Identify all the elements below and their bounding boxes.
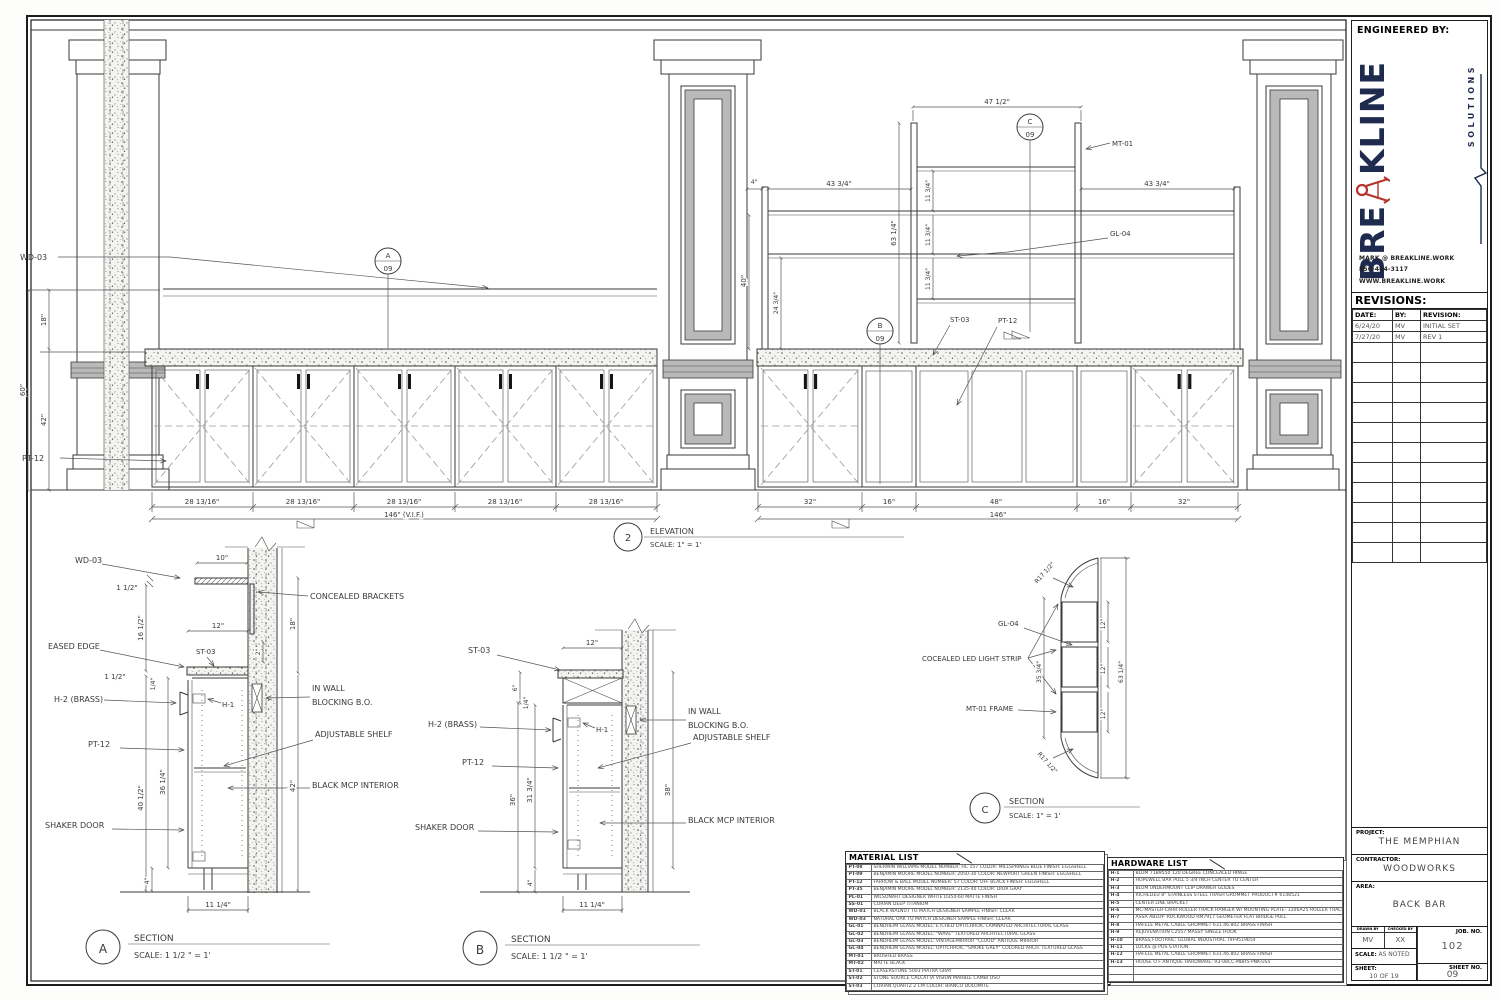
dim-label: 1/4" [523,697,530,710]
dim-label: 32" [1178,498,1190,506]
dim-label: 28 13/16" [387,498,422,506]
table-row: ST-03CORIAN QUARTZ 2 CM COLOR: BIANCO DO… [847,983,1104,990]
part-label: H-1 [222,701,234,709]
table-cell: MATTE BLACK [872,961,1104,968]
hardware-list: HARDWARE LIST H-1BLUM 71B9550 120 DEGREE… [1107,857,1344,983]
callout-sheet: 09 [384,265,393,273]
table-row: PT-12FARROW & BALL MODEL NUMBER: 57 COLO… [847,879,1104,886]
dim-label: 28 13/16" [488,498,523,506]
table-cell: H-4 [1109,893,1134,900]
table-row [1353,343,1487,363]
table-cell: PT-35 [847,887,872,894]
brand-right: KLINE [1356,61,1389,175]
part-label: ST-03 [468,646,490,655]
table-cell [1393,523,1421,543]
part-label: H-1 [596,726,608,734]
table-row: MT-01BRUSHED BRASS [847,953,1104,960]
dim-label: 12" [1100,709,1107,720]
breakline-logo: BREKLINE SOLUTIONS [1354,58,1484,284]
table-row [1353,383,1487,403]
area-row: AREA: BACK BAR [1352,882,1487,927]
countertop-right [757,349,1243,366]
table-row: H-9REJUVENATION C2557 MASSY SINGLE HOOK [1109,930,1343,937]
dim-label: 1 1/2" [104,673,125,681]
table-cell [1393,423,1421,443]
table-row: PL-01WILSONART DESIGNER WHITE D354-60 MA… [847,894,1104,901]
dim-label: 38" [664,784,672,796]
job-no-label: JOB. NO. [1456,929,1482,935]
table-cell: MC-MASTER-CARR ROLLER TRACK HANGER W/ MO… [1134,908,1343,915]
table-cell: REV 1 [1421,332,1487,343]
view-scale: SCALE: 1" = 1' [1009,812,1060,820]
table-cell: GL-03 [847,939,872,946]
table-cell [1353,483,1393,503]
dim-label: 18" [40,314,48,326]
part-label: ADJUSTABLE SHELF [693,733,771,742]
table-cell [1393,483,1421,503]
engineered-by-box: ENGINEERED BY: BREKLINE SOLUTIONS MARK @… [1352,21,1487,293]
table-row [1353,523,1487,543]
table-cell: BRASS FOOTRAIL: GLOBAL INDUSTRIAL T9F951… [1134,937,1343,944]
view-scale: SCALE: 1 1/2 " = 1' [134,951,211,960]
part-label: PT-12 [22,454,44,463]
table-row: PT-09BENJAMIN MOORE MODEL NUMBER: 2050-3… [847,872,1104,879]
callout-sheet: 09 [876,335,885,343]
dim-label: 31 3/4" [526,777,534,803]
job-no-cell: JOB. NO. 102 [1418,927,1487,964]
title-block-grid: DRAWN BY MV CHECKED BY XX SCALE: AS NOTE… [1352,927,1487,980]
table-cell: HAFELE METAL CABLE GROMMET 631.46.802 BR… [1134,952,1343,959]
area-label: AREA: [1356,884,1375,890]
scale-cell: SCALE: AS NOTED [1352,949,1416,965]
dim-label: 16 1/2" [137,615,145,641]
table-cell: RICHELIEU 8" STAINLESS STEEL TRASH GROMM… [1134,893,1343,900]
part-label: SHAKER DOOR [415,823,475,832]
title-block: ENGINEERED BY: BREKLINE SOLUTIONS MARK @… [1351,20,1488,981]
table-cell: H-5 [1109,900,1134,907]
table-cell: HOPEWELL BAR PULL 5 3/4 INCH CENTER TO C… [1134,878,1343,885]
table-row: PT-08SHERWIN WILLIAMS MODEL NUMBER: HC 1… [847,865,1104,872]
table-cell [1421,383,1487,403]
rev-col-date: DATE: [1353,310,1393,321]
dim-label: 12" [212,622,224,630]
table-cell: HAFELE METAL CABLE GROMMET 631.46.802 BR… [1134,922,1343,929]
table-row: GL-01BENDHEIM GLASS MODEL: ETCHED OPTICH… [847,924,1104,931]
table-cell [1109,974,1134,981]
checked-by-cell: CHECKED BY XX [1385,927,1417,948]
contact-phone: 856-404-3117 [1359,264,1454,275]
part-label: GL-04 [998,620,1019,628]
part-label: BLOCKING B.O. [688,721,748,730]
table-cell [1353,523,1393,543]
table-cell: CENTER LINE BRACKET [1134,900,1343,907]
stamp-box [1352,563,1487,828]
drawn-by-value: MV [1352,933,1384,948]
dim-label: 11 3/4" [925,180,932,202]
oak-shelf [195,578,248,584]
table-cell: NATURAL OAK TO MATCH DESIGNER SAMPLE FIN… [872,916,1104,923]
drawing-canvas: A 09 B 09 C 09 WD-03 PT-12 MT-01 GL-04 S… [0,0,1500,1000]
table-cell: H-12 [1109,952,1134,959]
breakline-zigzag-icon [1474,58,1488,284]
table-cell: PT-08 [847,865,872,872]
table-cell: 7/27/20 [1353,332,1393,343]
table-cell [1393,503,1421,523]
hardware-list-title: HARDWARE LIST [1108,858,1213,870]
table-cell: BRUSHED BRASS [872,953,1104,960]
part-label: BLACK MCP INTERIOR [312,781,399,790]
table-row [1109,967,1343,974]
drawing-sheet: A 09 B 09 C 09 WD-03 PT-12 MT-01 GL-04 S… [0,0,1500,1000]
table-cell [1393,383,1421,403]
dim-label: 11 3/4" [925,268,932,290]
table-cell: BLACK WALNUT TO MATCH DESIGNER SAMPLE FI… [872,909,1104,916]
dim-label: 16" [1098,498,1110,506]
table-row [1353,543,1487,563]
sheet-label: SHEET: [1355,966,1377,972]
contact-web: WWW.BREAKLINE.WORK [1359,276,1454,287]
table-row [1353,363,1487,383]
table-row: PT-35BENJAMIN MOORE MODEL NUMBER: 2135-4… [847,887,1104,894]
table-cell: BLUM UNDERMOUNT CLIP DRAWER GLIDES [1134,885,1343,892]
table-cell: GL-04 [847,946,872,953]
dim-label: 11 3/4" [925,224,932,246]
table-cell: H-7 [1109,915,1134,922]
table-cell [1421,443,1487,463]
brand-wordmark: BREKLINE [1354,58,1390,284]
table-row: MT-02MATTE BLACK [847,961,1104,968]
contact-block: MARK @ BREAKLINE.WORK 856-404-3117 WWW.B… [1359,253,1454,287]
dim-label: 12" [586,639,598,647]
table-cell: 6/24/20 [1353,321,1393,332]
dim-label: 10" [216,554,228,562]
part-label: MT-01 [1112,140,1133,148]
contractor-label: CONTRACTOR: [1356,857,1400,863]
dim-label: 63 1/4" [1118,661,1125,683]
part-label: MT-01 FRAME [966,705,1013,713]
table-cell: BLUM 71B9550 120 DEGREE CONCEALED HINGE [1134,871,1343,878]
part-label: IN WALL [688,707,721,716]
part-label: PT-12 [998,317,1017,325]
contractor-row: CONTRACTOR: WOODWORKS [1352,855,1487,882]
table-cell: BENJAMIN MOORE MODEL NUMBER: 2135-40 COL… [872,887,1104,894]
table-cell [1421,363,1487,383]
table-row: H-3BLUM UNDERMOUNT CLIP DRAWER GLIDES [1109,885,1343,892]
table-cell: CORIAN QUARTZ 2 CM COLOR: BIANCO DOLOMIT… [872,983,1104,990]
table-cell: CORIAN DEEP TITANIUM [872,902,1104,909]
table-row: H-13HOUSE O F ANTIQUE HARDWARE: R3-08CC-… [1109,959,1343,966]
table-row: H-7ASSA ABLOY- ROCKWOOD RM7917 GEOMETEK … [1109,915,1343,922]
callout-sheet: 09 [1026,131,1035,139]
table-cell [1353,363,1393,383]
table-row: ST-01CEASERSTONE 5003 PIATRA GRAY [847,968,1104,975]
table-cell [1393,463,1421,483]
table-cell [1421,343,1487,363]
table-cell: WILSONART DESIGNER WHITE D354-60 MATTE F… [872,894,1104,901]
table-cell: REJUVENATION C2557 MASSY SINGLE HOOK [1134,930,1343,937]
table-row: H-10BRASS FOOTRAIL: GLOBAL INDUSTRIAL T9… [1109,937,1343,944]
part-label: PT-12 [462,758,484,767]
engineered-by-label: ENGINEERED BY: [1352,21,1487,40]
table-cell: SHERWIN WILLIAMS MODEL NUMBER: HC 157 CO… [872,865,1104,872]
dim-label: 43 3/4" [826,180,852,188]
part-label: SHAKER DOOR [45,821,105,830]
table-cell [1353,343,1393,363]
scale-value: AS NOTED [1378,951,1409,958]
dim-label: 1 1/2" [116,584,137,592]
section-letter: A [99,942,108,956]
dim-label: 32" [804,498,816,506]
table-cell: BENDHEIM GLASS MODEL: "WAVE" TEXTURED AR… [872,931,1104,938]
table-cell [1421,403,1487,423]
table-cell [1109,967,1134,974]
part-label: CONCEALED BRACKETS [310,592,404,601]
dim-label: 36" [509,794,517,806]
table-row: GL-04BENDHEIM GLASS MODEL: OPTICHROIC "S… [847,946,1104,953]
table-cell: ASSA ABLOY- ROCKWOOD RM7917 GEOMETEK FLA… [1134,915,1343,922]
table-row: 7/27/20MVREV 1 [1353,332,1487,343]
table-cell: PT-12 [847,879,872,886]
brand-sub: SOLUTIONS [1467,64,1476,147]
table-cell: ST-03 [847,983,872,990]
part-label: COCEALED LED LIGHT STRIP [922,655,1021,663]
view-title: SECTION [1009,797,1044,806]
table-row [1353,443,1487,463]
table-cell: ST-01 [847,968,872,975]
table-cell [1353,463,1393,483]
table-cell [1393,343,1421,363]
dim-label: 1/4" [150,678,157,691]
dim-label: 18" [289,618,297,630]
callout-label: B [878,322,883,330]
table-cell: STONE SOURCE CALCATTA VISION MARBLE CAMB… [872,976,1104,983]
part-label: H-2 (BRASS) [54,695,103,704]
dim-label: 60" [19,384,27,396]
dim-label: 4" [751,179,758,186]
callout-label: A [386,252,391,260]
dim-label: 24 3/4" [773,292,780,314]
scale-label: SCALE: [1355,952,1377,958]
table-row: H-5CENTER LINE BRACKET [1109,900,1343,907]
table-cell [1393,543,1421,563]
table-cell [1421,483,1487,503]
table-row [1353,463,1487,483]
table-row: H-6MC-MASTER-CARR ROLLER TRACK HANGER W/… [1109,908,1343,915]
table-row: H-2HOPEWELL BAR PULL 5 3/4 INCH CENTER T… [1109,878,1343,885]
dim-label: 28 13/16" [286,498,321,506]
part-label: WD-03 [20,253,47,262]
sheet-no-label: SHEET NO. [1449,965,1482,971]
table-cell: HOUSE O F ANTIQUE HARDWARE: R3-08CC-MBR5… [1134,959,1343,966]
counter-section [187,667,248,675]
table-cell: H-13 [1109,959,1134,966]
dim-label: 16" [883,498,895,506]
sheet-cell: SHEET: 10 OF 19 [1352,965,1416,980]
table-cell [1353,503,1393,523]
table-cell [1393,403,1421,423]
table-cell: MV [1393,321,1421,332]
table-row [1353,403,1487,423]
table-cell [1421,423,1487,443]
view-number: 2 [625,533,631,544]
dim-label: 63 1/4" [890,220,898,246]
revisions-table: DATE: BY: REVISION: 6/24/20MVINITIAL SET… [1352,309,1487,563]
rev-col-revision: REVISION: [1421,310,1487,321]
table-cell: BENJAMIN MOORE MODEL NUMBER: 2050-30 COL… [872,872,1104,879]
table-cell: INITIAL SET [1421,321,1487,332]
part-label: BLACK MCP INTERIOR [688,816,775,825]
table-cell [1134,967,1343,974]
checked-by-value: XX [1385,933,1417,948]
table-cell: WD-01 [847,909,872,916]
dim-label: 47 1/2" [984,98,1010,106]
table-cell: FARROW & BALL MODEL NUMBER: 57 COLOR: OF… [872,879,1104,886]
dim-label: 36 1/4" [159,769,167,795]
dim-label: 42" [289,780,297,792]
table-cell: H-3 [1109,885,1134,892]
table-cell [1353,543,1393,563]
table-cell: GL-01 [847,924,872,931]
table-row: H-12HAFELE METAL CABLE GROMMET 631.46.80… [1109,952,1343,959]
dim-label: 2" [255,648,262,655]
section-letter: B [476,943,484,957]
table-cell [1353,443,1393,463]
view-scale: SCALE: 1 1/2 " = 1' [511,952,588,961]
table-cell [1353,383,1393,403]
dim-label: 6" [512,684,519,691]
table-cell: LOCKS @ POS STATION [1134,945,1343,952]
rev-col-by: BY: [1393,310,1421,321]
dim-label: 43 3/4" [1144,180,1170,188]
part-label: GL-04 [1110,230,1131,238]
project-row: PROJECT: THE MEMPHIAN [1352,828,1487,855]
table-cell [1134,974,1343,981]
dim-label: 11 1/4" [579,901,605,909]
part-label: H-2 (BRASS) [428,720,477,729]
countertop-left [145,349,657,366]
view-title: ELEVATION [650,527,694,536]
table-row: SS-01CORIAN DEEP TITANIUM [847,902,1104,909]
callout-label: C [1028,118,1033,126]
compass-icon [1354,175,1390,205]
table-cell: H-6 [1109,908,1134,915]
table-cell: CEASERSTONE 5003 PIATRA GRAY [872,968,1104,975]
dim-label: 4" [144,877,151,884]
view-title: SECTION [511,935,551,945]
table-cell: H-1 [1109,871,1134,878]
part-label: ST-03 [950,316,970,324]
table-cell: ST-02 [847,976,872,983]
table-cell [1393,443,1421,463]
table-cell: H-10 [1109,937,1134,944]
dim-label: 12" [1100,664,1107,675]
table-row [1353,423,1487,443]
table-row [1109,974,1343,981]
table-row: H-8HAFELE METAL CABLE GROMMET 631.46.802… [1109,922,1343,929]
table-cell: H-2 [1109,878,1134,885]
table-cell: PL-01 [847,894,872,901]
table-row [1353,503,1487,523]
table-cell: BENDHEIM GLASS MODEL: ETCHED OPTICHROIC … [872,924,1104,931]
table-cell: MT-01 [847,953,872,960]
table-row: ST-02STONE SOURCE CALCATTA VISION MARBLE… [847,976,1104,983]
table-cell [1421,463,1487,483]
dim-label: 28 13/16" [589,498,624,506]
material-list: MATERIAL LIST PT-08SHERWIN WILLIAMS MODE… [845,851,1105,992]
part-label: EASED EDGE [48,642,100,651]
part-label: IN WALL [312,684,345,693]
dim-label: 40 1/2" [137,785,145,811]
table-row: H-11LOCKS @ POS STATION [1109,945,1343,952]
table-cell: MV [1393,332,1421,343]
table-row: H-4RICHELIEU 8" STAINLESS STEEL TRASH GR… [1109,893,1343,900]
table-row: 6/24/20MVINITIAL SET [1353,321,1487,332]
dim-label: 12" [1100,619,1107,630]
table-row: H-1BLUM 71B9550 120 DEGREE CONCEALED HIN… [1109,871,1343,878]
dim-label: 28 13/16" [185,498,220,506]
drawn-by-cell: DRAWN BY MV [1352,927,1385,948]
table-cell [1421,503,1487,523]
material-list-title: MATERIAL LIST [846,852,960,864]
dim-label: 11 1/4" [205,901,231,909]
part-label: ST-03 [196,648,216,656]
contact-email: MARK @ BREAKLINE.WORK [1359,253,1454,264]
table-cell: WD-03 [847,916,872,923]
part-label: WD-03 [75,556,102,565]
wall-section-strip [104,20,129,490]
table-cell: H-11 [1109,945,1134,952]
dim-label: 4" [527,879,534,886]
table-cell: MT-02 [847,961,872,968]
table-cell: H-9 [1109,930,1134,937]
view-title: SECTION [134,934,174,944]
dim-label: 146" (V.I.F.) [384,511,424,519]
part-label: ADJUSTABLE SHELF [315,730,393,739]
dim-label: 35 3/4" [1036,661,1043,683]
table-cell: BENDHEIM GLASS MODEL: OPTICHROIC "SMOKE … [872,946,1104,953]
table-cell: H-8 [1109,922,1134,929]
view-scale: SCALE: 1" = 1' [650,541,701,549]
dim-label: 48" [990,498,1002,506]
table-row: WD-01BLACK WALNUT TO MATCH DESIGNER SAMP… [847,909,1104,916]
table-cell [1421,523,1487,543]
table-row: GL-03BENDHEIM GLASS MODEL: VINTAGEMIRROR… [847,939,1104,946]
table-cell: SS-01 [847,902,872,909]
table-row: WD-03NATURAL OAK TO MATCH DESIGNER SAMPL… [847,916,1104,923]
sheet-no-cell: SHEET NO. 09 [1418,964,1487,980]
table-cell [1353,403,1393,423]
table-cell: GL-02 [847,931,872,938]
part-label: BLOCKING B.O. [312,698,372,707]
table-cell [1421,543,1487,563]
table-row: GL-02BENDHEIM GLASS MODEL: "WAVE" TEXTUR… [847,931,1104,938]
project-label: PROJECT: [1356,830,1384,836]
table-cell [1393,363,1421,383]
dim-label: 40" [740,275,748,287]
table-row [1353,483,1487,503]
table-cell: PT-09 [847,872,872,879]
dim-label: 42" [40,414,48,426]
counter-section [558,670,623,678]
dim-label: 146" [990,511,1007,519]
revisions-title: REVISIONS: [1352,293,1487,309]
table-cell: BENDHEIM GLASS MODEL: VINTAGEMIRROR "CLO… [872,939,1104,946]
section-letter: C [982,805,989,816]
part-label: PT-12 [88,740,110,749]
table-cell [1353,423,1393,443]
